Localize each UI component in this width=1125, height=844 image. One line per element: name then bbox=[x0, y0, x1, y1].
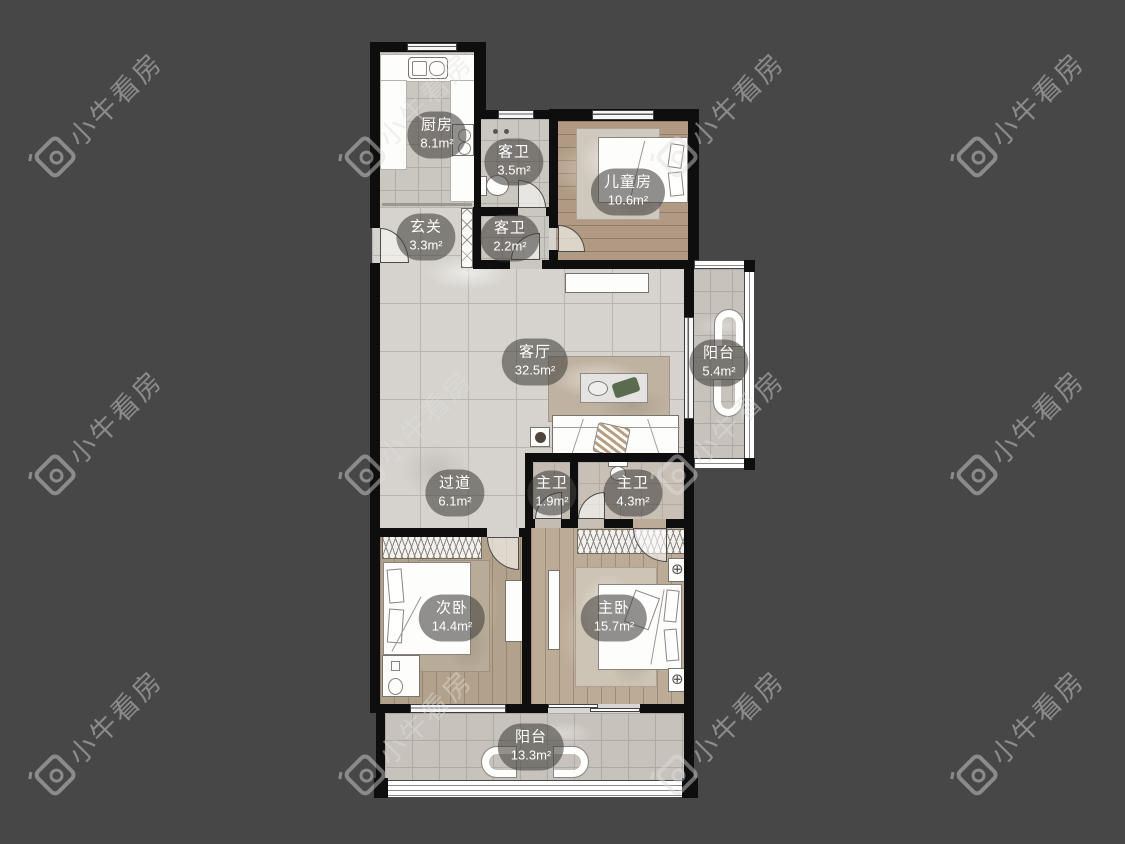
room-label-master-bath-2: 主卫4.3m² bbox=[603, 470, 662, 517]
room-label-master-bath-1: 主卫1.9m² bbox=[527, 471, 576, 516]
room-label-kids-room: 儿童房10.6m² bbox=[591, 169, 665, 216]
balcony-south-rail bbox=[386, 780, 684, 798]
foyer-cabinet bbox=[461, 208, 473, 268]
room-label-master-bedroom: 主卧15.7m² bbox=[581, 595, 647, 642]
niu-logo-icon bbox=[32, 452, 79, 499]
balcony-east-rail-bottom bbox=[694, 458, 746, 469]
room-label-foyer: 玄关3.3m² bbox=[396, 214, 455, 261]
second-bedroom-window bbox=[410, 704, 506, 713]
floor-plan: ⊕ ⊕ bbox=[370, 42, 758, 800]
niu-logo-icon bbox=[954, 752, 1001, 799]
room-label-kitchen: 厨房8.1m² bbox=[407, 112, 466, 159]
desk bbox=[382, 655, 420, 697]
kids-room-window bbox=[592, 110, 654, 120]
room-label-balcony-east: 阳台5.4m² bbox=[689, 340, 748, 387]
side-cabinet bbox=[505, 580, 523, 642]
faucet-icon bbox=[504, 129, 509, 134]
room-label-second-bedroom: 次卧14.4m² bbox=[419, 595, 485, 642]
master-bedroom-wardrobe bbox=[577, 529, 685, 554]
coffee-table bbox=[580, 373, 648, 403]
watermark: 小牛看房 bbox=[30, 660, 171, 801]
kitchen-window bbox=[407, 43, 457, 51]
niu-logo-icon bbox=[32, 134, 79, 181]
plant-stand bbox=[530, 427, 550, 447]
watermark: 小牛看房 bbox=[952, 660, 1093, 801]
room-label-hallway: 过道6.1m² bbox=[425, 470, 484, 517]
tv-cabinet bbox=[565, 273, 649, 293]
niu-logo-icon bbox=[32, 752, 79, 799]
room-label-balcony-south: 阳台13.3m² bbox=[498, 724, 564, 771]
kitchen-counter-left bbox=[380, 80, 407, 170]
master-balcony-slide-door bbox=[548, 704, 640, 713]
room-label-guest-bath-2: 客卫2.2m² bbox=[480, 215, 539, 262]
kitchen-sink bbox=[408, 57, 448, 79]
niu-logo-icon bbox=[954, 452, 1001, 499]
room-label-guest-bath-1: 客卫3.5m² bbox=[484, 139, 543, 186]
balcony-east-rail-top bbox=[694, 260, 746, 269]
ceiling-lamp-icon: ⊕ bbox=[671, 562, 684, 577]
watermark: 小牛看房 bbox=[952, 42, 1093, 183]
watermark: 小牛看房 bbox=[30, 360, 171, 501]
second-bedroom-wardrobe bbox=[382, 535, 482, 559]
watermark: 小牛看房 bbox=[30, 42, 171, 183]
niu-logo-icon bbox=[954, 134, 1001, 181]
mirror-cabinet bbox=[548, 570, 560, 650]
floorplan-page: { "background_color": "#474747", "waterm… bbox=[0, 0, 1125, 844]
watermark: 小牛看房 bbox=[952, 360, 1093, 501]
faucet-icon bbox=[493, 129, 498, 134]
kitchen-threshold bbox=[382, 203, 472, 206]
ceiling-lamp-icon: ⊕ bbox=[671, 672, 684, 687]
room-label-living-room: 客厅32.5m² bbox=[502, 339, 568, 386]
guest-bath-1-window bbox=[498, 110, 534, 119]
